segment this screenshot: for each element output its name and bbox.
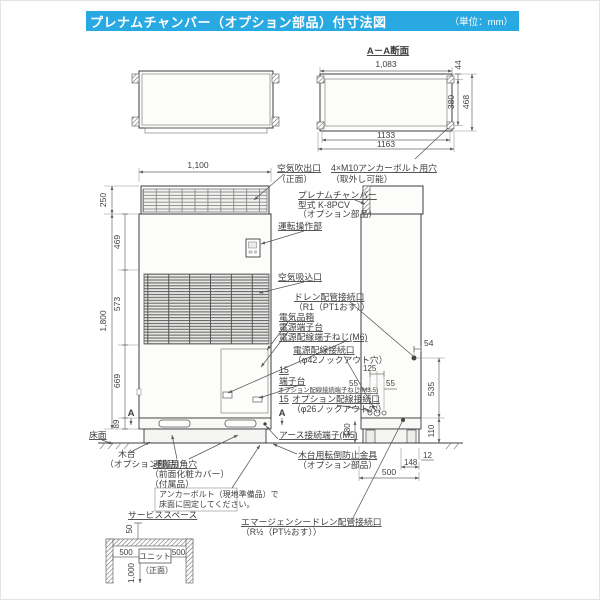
dim-front-plenum-h: 250 (98, 193, 108, 207)
dim-front-sec2: 573 (112, 297, 122, 311)
dim-side-depth: 500 (382, 467, 396, 477)
knockout-42 (223, 392, 232, 398)
service-wall-right (186, 539, 193, 583)
label-elec-box: 電気品箱 (279, 311, 314, 322)
dim-edge-15a: 15 (279, 365, 289, 375)
label-drain-1: ドレン配管接続口 (294, 291, 364, 302)
dim-front-sec3: 669 (112, 374, 122, 388)
aa-title: A－A断面 (367, 45, 410, 57)
dimension-drawing-page: プレナムチャンバー（オプション部品）付寸法図 （単位：mm） (0, 0, 600, 600)
front-view: 1,100 (98, 160, 286, 443)
wooden-base-front (144, 429, 266, 443)
dim-aa-width-top: 1,083 (375, 59, 397, 69)
dim-aa-outer-h: 468 (461, 95, 471, 109)
floor-line (98, 443, 463, 449)
label-opt-screw: オプション配線接続端子ねじ(M3.5) (278, 385, 378, 394)
dim-aa-overall-w: 1163 (377, 139, 396, 149)
service-wall-top (106, 539, 193, 546)
service-unit-label: ユニット (139, 552, 171, 561)
label-power-screw: 電源配線端子ねじ(M6) (279, 331, 368, 342)
transport-hole (159, 420, 190, 427)
label-plenum-3: （オプション部品） (298, 208, 377, 219)
label-air-outlet: 空気吹出口 (277, 162, 321, 173)
dim-service-top: 50 (125, 524, 134, 533)
label-air-inlet: 空気吸込口 (278, 271, 322, 282)
emergency-drain-point (401, 418, 405, 422)
dim-side-base-h: 110 (427, 424, 436, 437)
label-tb: 端子台 (279, 375, 306, 386)
dim-front-sec1: 469 (112, 235, 122, 249)
label-earth: アース接続端子(M5) (279, 429, 358, 440)
label-power-tb: 電源端子台 (279, 321, 323, 332)
dim-side-drain-h: 535 (426, 382, 436, 396)
dim-service-right: 500 (172, 548, 186, 557)
label-hole-1: 運搬用角穴 (153, 458, 197, 469)
control-panel (246, 239, 260, 257)
air-outlet-grille (143, 189, 267, 212)
service-wall-left (106, 539, 113, 583)
dim-side-foot: 148 (404, 458, 418, 467)
bolt-tab (132, 117, 139, 126)
dim-front-total-h: 1,800 (98, 310, 108, 332)
label-drain-2: （R1（PT1おす）） (294, 302, 370, 312)
earth-terminal (263, 422, 266, 425)
service-space-title: サービススペース (128, 510, 197, 520)
label-tip-bracket-1: 木台用転倒防止金具 (298, 449, 377, 460)
dim-side-knock-r: 55 (386, 379, 395, 388)
dim-aa-flange: 44 (453, 60, 463, 70)
dim-aa-inner-h: 380 (446, 95, 456, 109)
dim-service-left: 500 (119, 548, 133, 557)
section-mark-left: A (128, 408, 135, 419)
aa-section-view: A－A断面 1,083 44 380 468 (317, 45, 477, 159)
drain-connection-point (412, 356, 417, 361)
bolt-tab (272, 117, 279, 126)
label-opt-port-2: （φ26ノックアウト穴） (292, 403, 387, 414)
label-control: 運転操作部 (278, 220, 322, 231)
label-power-port-2: （φ42ノックアウト穴） (293, 354, 388, 365)
service-space-diagram: サービススペース 50 ユニット 500 500 1,000 （正面） (106, 510, 197, 583)
label-anchor-note-1: アンカーボルト（現地準備品）で (159, 489, 279, 499)
label-anchor-holes-2: （取外し可能） (331, 173, 393, 184)
label-tip-bracket-2: （オプション部品） (298, 459, 377, 470)
section-mark-right: A (279, 408, 286, 419)
dim-service-depth: 1,000 (127, 562, 136, 583)
dim-front-sec4: 89 (112, 419, 121, 428)
base-frame-side (361, 418, 421, 429)
top-view (132, 71, 279, 133)
transport-hole (225, 420, 256, 427)
bolt-tab (272, 74, 279, 83)
air-inlet-grille (144, 274, 269, 344)
label-hole-2: （前面化粧カバー） (150, 468, 229, 479)
service-front-label: （正面） (141, 566, 173, 575)
label-base-1: 木台 (118, 448, 136, 459)
label-emergency-drain-2: （R½（PT½おす）） (241, 527, 322, 537)
label-floor: 床面 (89, 429, 107, 440)
dim-side-knock-span: 125 (363, 364, 377, 373)
label-emergency-drain-1: エマージェンシードレン配管接続口 (241, 516, 382, 527)
dim-edge-15b: 15 (279, 394, 289, 404)
label-hole-3: （付属品） (150, 479, 194, 489)
dim-side-drain-off: 54 (424, 338, 434, 348)
bolt-tab (132, 74, 139, 83)
label-power-port-1: 電源配線接続口 (293, 344, 355, 355)
label-opt-port-1: オプション配線接続口 (292, 393, 380, 404)
label-plenum-1: プレナムチャンバー (298, 190, 377, 200)
label-anchor-note-2: 床面に固定してください。 (159, 499, 255, 509)
dim-side-off-bottom: 12 (423, 451, 432, 460)
drawing-canvas: A－A断面 1,083 44 380 468 (1, 1, 600, 600)
dim-front-width: 1,100 (187, 160, 209, 170)
label-anchor-holes: 4×M10アンカーボルト用穴 (331, 162, 437, 173)
